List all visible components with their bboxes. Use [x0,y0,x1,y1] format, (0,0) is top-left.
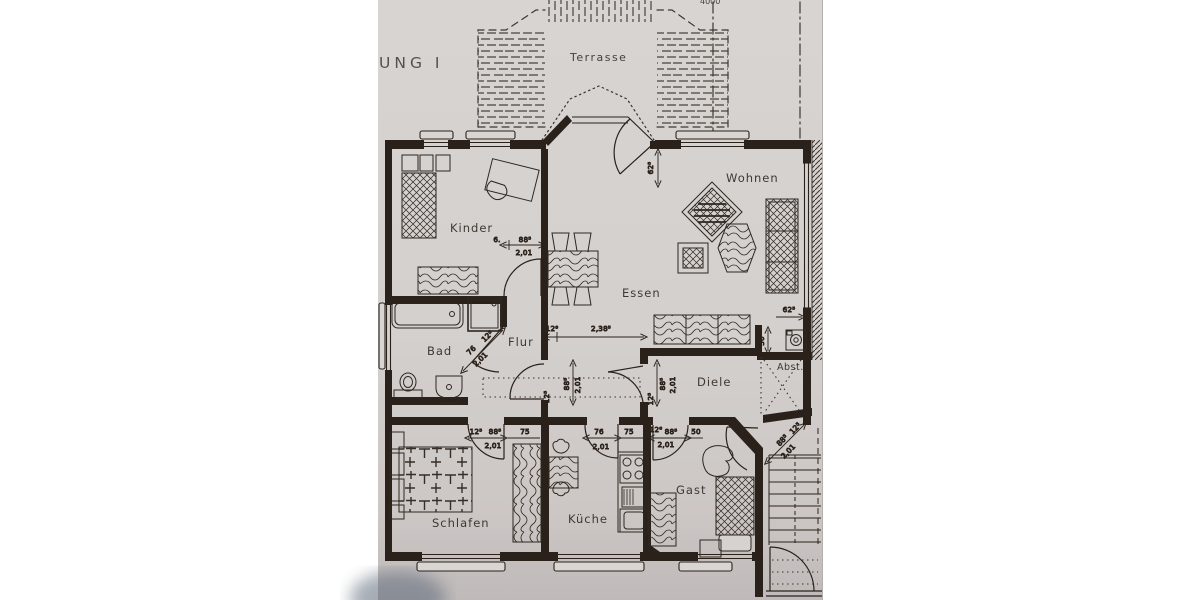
room-label-diele: Diele [697,375,731,389]
room-label-kinder: Kinder [450,221,493,235]
svg-text:62⁵: 62⁵ [783,305,796,314]
svg-text:2,01: 2,01 [516,248,533,257]
svg-text:2,01: 2,01 [668,377,677,394]
svg-text:76: 76 [594,427,604,436]
room-label-flur: Flur [508,335,534,349]
svg-text:2,38⁵: 2,38⁵ [591,324,611,333]
svg-text:50: 50 [691,427,701,436]
svg-text:75: 75 [624,427,634,436]
svg-text:2,01: 2,01 [485,441,502,450]
floorplan-drawing: Terrasse 4000 UNG I [0,0,1200,600]
wohnen-sideboard-icon [654,315,750,344]
svg-text:2,01: 2,01 [658,440,675,449]
plan-title-fragment: UNG I [379,54,443,72]
floorplan-photo: Terrasse 4000 UNG I [0,0,1200,600]
svg-text:2,01: 2,01 [573,377,582,394]
svg-text:75: 75 [520,427,530,436]
room-label-abst: Abst. [777,362,804,373]
svg-text:88⁵: 88⁵ [658,378,667,391]
terrace-paving-left [478,28,545,127]
svg-text:88⁵: 88⁵ [489,427,502,436]
room-label-bad: Bad [427,344,452,358]
terrace-label: Terrasse [569,51,627,64]
svg-text:6.: 6. [493,235,500,244]
wohnen-sofa-icon [766,199,798,293]
svg-text:12⁵: 12⁵ [542,391,551,404]
room-label-schlafen: Schlafen [432,516,490,530]
svg-text:62⁵: 62⁵ [646,162,655,175]
terrace-paving-top [545,0,655,22]
schlafen-wardrobe-icon [513,444,541,542]
top-dimension-fragment: 4000 [700,0,720,6]
room-label-kueche: Küche [568,512,608,526]
room-label-essen: Essen [622,286,661,300]
terrace-paving-right [657,28,728,127]
svg-text:2,01: 2,01 [593,442,610,451]
exterior-wall-hatch [812,140,822,360]
wohnen-side-table-icon [678,243,708,273]
room-label-wohnen: Wohnen [726,171,779,185]
svg-text:12⁸: 12⁸ [650,425,663,434]
svg-text:88⁵: 88⁵ [519,235,532,244]
svg-text:88⁵: 88⁵ [665,427,678,436]
gast-dresser-icon [649,493,676,546]
kinder-dresser-icon [418,267,478,294]
svg-text:50: 50 [757,336,766,346]
svg-text:12⁸: 12⁸ [546,324,559,333]
svg-text:12⁵: 12⁵ [470,427,483,436]
gast-bed-icon [716,477,754,551]
svg-text:12⁵: 12⁵ [646,393,655,406]
svg-text:88⁵: 88⁵ [562,378,571,391]
room-label-gast: Gast [676,483,706,497]
